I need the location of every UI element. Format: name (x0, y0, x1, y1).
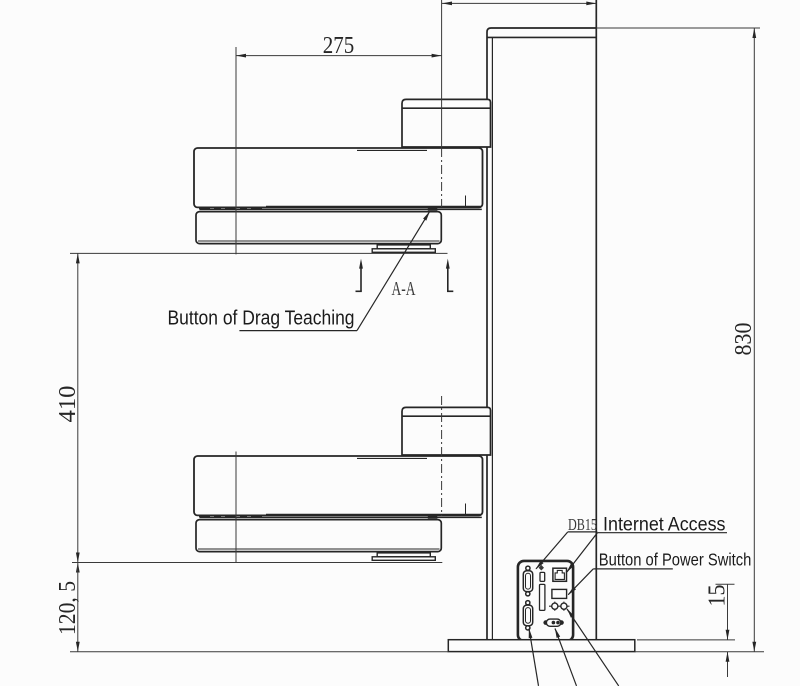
svg-text:A-A: A-A (392, 278, 416, 300)
svg-text:120, 5: 120, 5 (55, 581, 81, 635)
svg-text:830: 830 (731, 323, 757, 356)
svg-text:Button of Power Switch: Button of Power Switch (599, 550, 752, 570)
svg-text:410: 410 (55, 386, 81, 423)
svg-text:15: 15 (704, 585, 730, 607)
svg-text:Button of Drag Teaching: Button of Drag Teaching (168, 307, 355, 329)
svg-text:DB15: DB15 (568, 515, 597, 534)
svg-text:275: 275 (323, 33, 355, 59)
